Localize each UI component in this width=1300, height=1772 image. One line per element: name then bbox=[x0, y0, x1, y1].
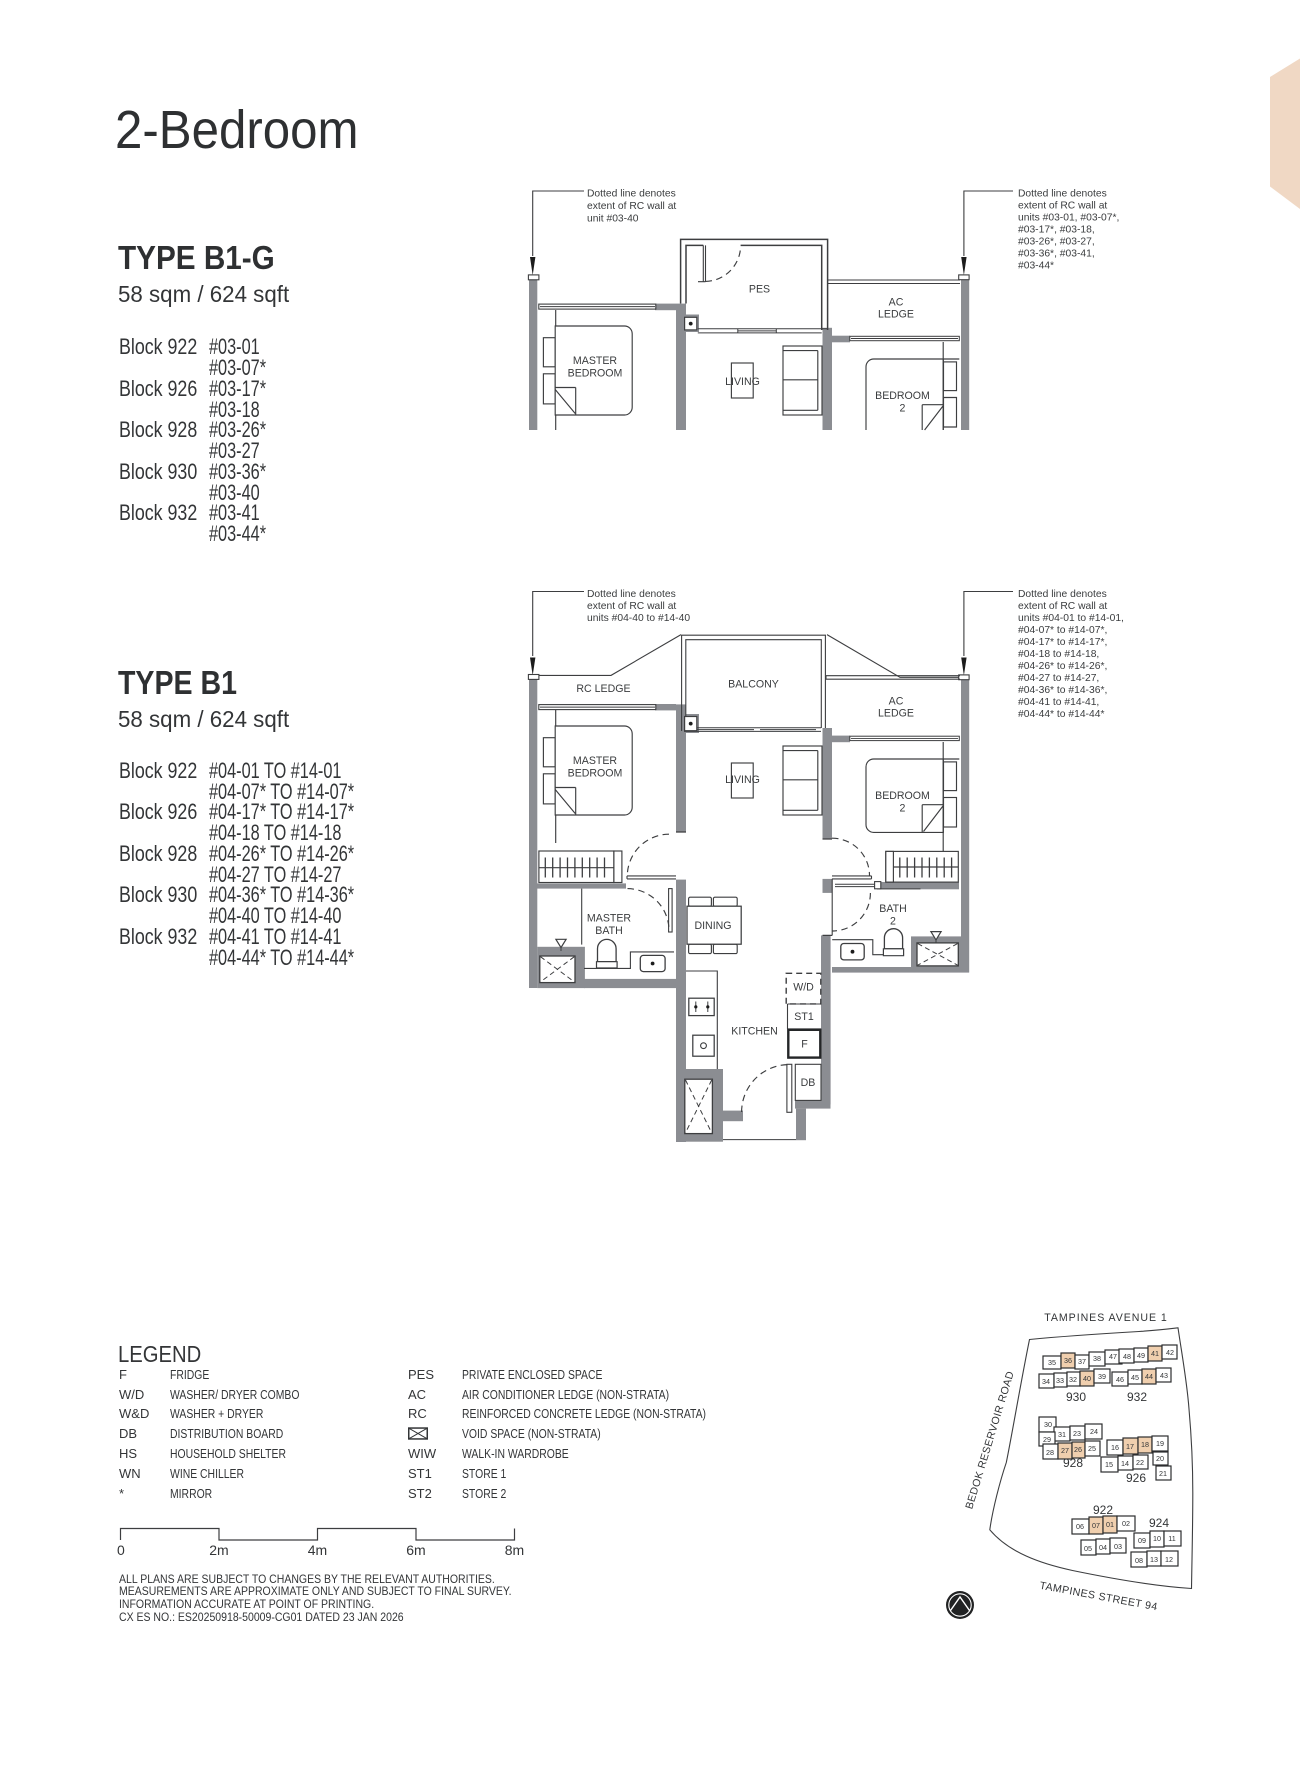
svg-text:2m: 2m bbox=[209, 1542, 228, 1558]
svg-text:TAMPINES AVENUE 1: TAMPINES AVENUE 1 bbox=[1044, 1312, 1168, 1324]
svg-text:#03-36*, #03-41,: #03-36*, #03-41, bbox=[1018, 249, 1095, 260]
svg-text:#04-27 to #14-27,: #04-27 to #14-27, bbox=[1018, 673, 1099, 684]
svg-text:03: 03 bbox=[1114, 1542, 1122, 1551]
svg-text:44: 44 bbox=[1145, 1372, 1153, 1381]
svg-text:0: 0 bbox=[117, 1542, 125, 1558]
svg-text:BEDROOM: BEDROOM bbox=[568, 368, 623, 380]
svg-text:BALCONY: BALCONY bbox=[728, 679, 779, 691]
svg-text:33: 33 bbox=[1056, 1376, 1064, 1385]
svg-text:#04-17* to #14-17*,: #04-17* to #14-17*, bbox=[1018, 637, 1107, 648]
svg-text:34: 34 bbox=[1042, 1377, 1050, 1386]
svg-text:04: 04 bbox=[1099, 1543, 1107, 1552]
svg-text:32: 32 bbox=[1069, 1375, 1077, 1384]
svg-text:46: 46 bbox=[1116, 1375, 1124, 1384]
svg-text:W/D: W/D bbox=[793, 982, 814, 994]
svg-text:LIVING: LIVING bbox=[725, 376, 760, 388]
svg-text:extent of RC wall at: extent of RC wall at bbox=[587, 601, 676, 612]
svg-text:23: 23 bbox=[1073, 1429, 1081, 1438]
svg-text:extent of RC wall at: extent of RC wall at bbox=[587, 201, 676, 212]
svg-text:12: 12 bbox=[1165, 1555, 1173, 1564]
svg-text:45: 45 bbox=[1131, 1373, 1139, 1382]
svg-text:#04-07* to #14-07*,: #04-07* to #14-07*, bbox=[1018, 625, 1107, 636]
svg-text:#03-17*, #03-18,: #03-17*, #03-18, bbox=[1018, 225, 1095, 236]
svg-text:6m: 6m bbox=[406, 1542, 425, 1558]
svg-text:21: 21 bbox=[1159, 1469, 1167, 1478]
svg-text:02: 02 bbox=[1122, 1519, 1130, 1528]
svg-text:LEDGE: LEDGE bbox=[878, 309, 914, 321]
svg-text:#04-36* to #14-36*,: #04-36* to #14-36*, bbox=[1018, 685, 1107, 696]
svg-text:13: 13 bbox=[1150, 1555, 1158, 1564]
svg-text:36: 36 bbox=[1064, 1356, 1072, 1365]
svg-text:RC LEDGE: RC LEDGE bbox=[576, 683, 630, 695]
svg-text:Dotted line denotes: Dotted line denotes bbox=[587, 589, 676, 600]
svg-text:07: 07 bbox=[1092, 1521, 1100, 1530]
svg-text:924: 924 bbox=[1149, 1516, 1169, 1530]
svg-text:DINING: DINING bbox=[694, 920, 731, 932]
svg-text:29: 29 bbox=[1043, 1435, 1051, 1444]
svg-text:BEDOK RESERVOIR ROAD: BEDOK RESERVOIR ROAD bbox=[963, 1370, 1017, 1511]
svg-text:2: 2 bbox=[900, 403, 906, 415]
svg-text:Dotted line denotes: Dotted line denotes bbox=[587, 189, 676, 200]
svg-text:2: 2 bbox=[890, 916, 896, 928]
svg-text:928: 928 bbox=[1063, 1456, 1083, 1470]
svg-text:08: 08 bbox=[1135, 1556, 1143, 1565]
svg-text:26: 26 bbox=[1074, 1445, 1082, 1454]
svg-text:15: 15 bbox=[1105, 1460, 1113, 1469]
svg-text:units #04-01 to #14-01,: units #04-01 to #14-01, bbox=[1018, 613, 1124, 624]
svg-text:39: 39 bbox=[1098, 1372, 1106, 1381]
svg-text:37: 37 bbox=[1078, 1357, 1086, 1366]
svg-text:35: 35 bbox=[1048, 1358, 1056, 1367]
svg-text:06: 06 bbox=[1076, 1522, 1084, 1531]
svg-text:47: 47 bbox=[1109, 1352, 1117, 1361]
svg-text:922: 922 bbox=[1093, 1503, 1113, 1517]
svg-text:8m: 8m bbox=[505, 1542, 524, 1558]
svg-text:31: 31 bbox=[1058, 1430, 1066, 1439]
svg-text:22: 22 bbox=[1136, 1458, 1144, 1467]
svg-text:30: 30 bbox=[1044, 1420, 1052, 1429]
svg-text:BEDROOM: BEDROOM bbox=[875, 390, 930, 402]
svg-text:MASTER: MASTER bbox=[573, 355, 617, 367]
svg-text:18: 18 bbox=[1141, 1440, 1149, 1449]
svg-text:#03-26*, #03-27,: #03-26*, #03-27, bbox=[1018, 237, 1095, 248]
svg-text:11: 11 bbox=[1168, 1534, 1175, 1543]
svg-text:#04-26* to #14-26*,: #04-26* to #14-26*, bbox=[1018, 661, 1107, 672]
svg-text:09: 09 bbox=[1138, 1536, 1146, 1545]
svg-text:LEDGE: LEDGE bbox=[878, 708, 914, 720]
svg-text:932: 932 bbox=[1127, 1390, 1147, 1404]
svg-text:926: 926 bbox=[1126, 1471, 1146, 1485]
svg-text:ST1: ST1 bbox=[794, 1011, 814, 1023]
svg-text:28: 28 bbox=[1046, 1448, 1054, 1457]
svg-text:BEDROOM: BEDROOM bbox=[875, 790, 930, 802]
svg-text:930: 930 bbox=[1066, 1390, 1086, 1404]
svg-text:LIVING: LIVING bbox=[725, 774, 760, 786]
svg-text:Dotted line denotes: Dotted line denotes bbox=[1018, 589, 1107, 600]
svg-text:05: 05 bbox=[1084, 1544, 1092, 1553]
svg-text:KITCHEN: KITCHEN bbox=[731, 1026, 778, 1038]
svg-text:#03-44*: #03-44* bbox=[1018, 261, 1054, 272]
svg-text:unit #03-40: unit #03-40 bbox=[587, 214, 639, 225]
svg-text:BATH: BATH bbox=[595, 925, 622, 937]
svg-text:extent of RC wall at: extent of RC wall at bbox=[1018, 201, 1107, 212]
svg-text:41: 41 bbox=[1151, 1349, 1159, 1358]
svg-text:#04-41 to #14-41,: #04-41 to #14-41, bbox=[1018, 697, 1099, 708]
svg-text:2: 2 bbox=[900, 803, 906, 815]
svg-text:Dotted line denotes: Dotted line denotes bbox=[1018, 189, 1107, 200]
svg-text:MASTER: MASTER bbox=[573, 755, 617, 767]
svg-text:10: 10 bbox=[1153, 1534, 1161, 1543]
svg-text:BEDROOM: BEDROOM bbox=[568, 768, 623, 780]
svg-text:01: 01 bbox=[1106, 1520, 1114, 1529]
svg-text:14: 14 bbox=[1121, 1459, 1129, 1468]
svg-text:4m: 4m bbox=[308, 1542, 327, 1558]
svg-text:#04-44* to #14-44*: #04-44* to #14-44* bbox=[1018, 709, 1104, 720]
svg-text:38: 38 bbox=[1093, 1354, 1101, 1363]
svg-text:42: 42 bbox=[1166, 1348, 1174, 1357]
svg-text:48: 48 bbox=[1123, 1352, 1131, 1361]
svg-text:40: 40 bbox=[1083, 1374, 1091, 1383]
svg-text:19: 19 bbox=[1156, 1439, 1164, 1448]
svg-text:17: 17 bbox=[1126, 1442, 1134, 1451]
svg-text:25: 25 bbox=[1088, 1444, 1096, 1453]
svg-text:F: F bbox=[801, 1039, 808, 1051]
svg-text:AC: AC bbox=[889, 297, 904, 309]
svg-text:DB: DB bbox=[801, 1077, 816, 1089]
svg-text:units #03-01, #03-07*,: units #03-01, #03-07*, bbox=[1018, 213, 1119, 224]
svg-text:24: 24 bbox=[1090, 1427, 1098, 1436]
svg-text:43: 43 bbox=[1160, 1371, 1168, 1380]
svg-text:AC: AC bbox=[889, 696, 904, 708]
svg-text:#04-18 to #14-18,: #04-18 to #14-18, bbox=[1018, 649, 1099, 660]
svg-text:27: 27 bbox=[1061, 1446, 1069, 1455]
svg-text:MASTER: MASTER bbox=[587, 913, 631, 925]
svg-text:extent of RC wall at: extent of RC wall at bbox=[1018, 601, 1107, 612]
svg-text:20: 20 bbox=[1156, 1454, 1164, 1463]
svg-text:TAMPINES STREET 94: TAMPINES STREET 94 bbox=[1039, 1580, 1159, 1614]
svg-text:16: 16 bbox=[1111, 1443, 1119, 1452]
svg-text:49: 49 bbox=[1137, 1351, 1145, 1360]
svg-text:BATH: BATH bbox=[879, 903, 906, 915]
svg-text:PES: PES bbox=[749, 284, 770, 296]
svg-text:units #04-40 to #14-40: units #04-40 to #14-40 bbox=[587, 613, 690, 624]
